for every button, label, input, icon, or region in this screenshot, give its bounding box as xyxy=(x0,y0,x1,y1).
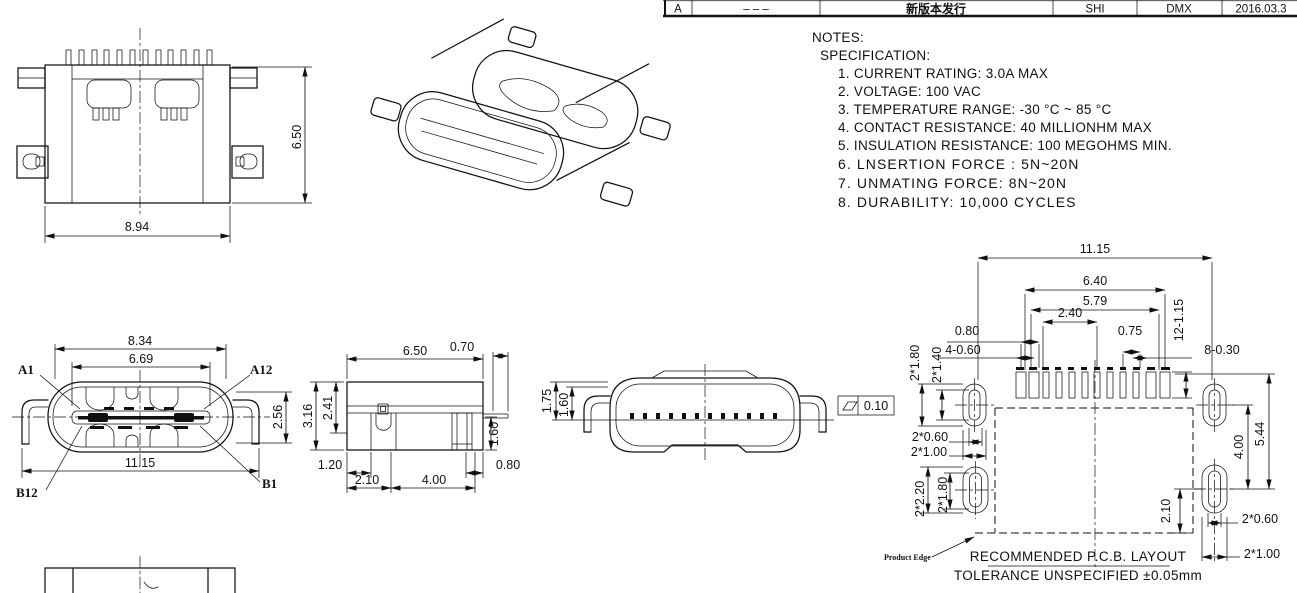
flatness-value: 0.10 xyxy=(864,399,888,413)
dim-side-leg-height: 1.60 xyxy=(485,417,501,450)
dim-text-6-40: 6.40 xyxy=(1083,274,1107,288)
dim-text-2x0-60: 2*0.60 xyxy=(912,430,948,444)
dim-pcb-gap: 4.00 xyxy=(1228,405,1253,489)
view-end: 1.75 1.60 0.10 xyxy=(540,364,894,460)
view-bottom-partial xyxy=(45,556,235,593)
notes-heading: NOTES: xyxy=(812,30,864,45)
top-view-inner-detail xyxy=(72,65,203,203)
side-inner-detail xyxy=(347,404,508,450)
titleblock-checked-by: DMX xyxy=(1166,4,1192,16)
note-item-3: 3. TEMPERATURE RANGE: -30 °C ~ 85 °C xyxy=(838,102,1112,117)
view-front: 8.34 6.69 2.56 11.15 A1 A12 B12 B1 xyxy=(12,334,292,500)
dim-text-6-50b: 6.50 xyxy=(403,344,427,358)
titleblock-drawn-by: SHI xyxy=(1085,4,1104,16)
dim-pcb-center-span: 2.40 xyxy=(1043,306,1097,370)
dim-text-11-15: 11.15 xyxy=(125,456,155,470)
flatness-callout: 0.10 xyxy=(838,396,894,415)
dim-pcb-pitch2: 0.75 xyxy=(1118,324,1142,368)
pcb-pad xyxy=(1146,372,1156,398)
note-item-8: 8. DURABILITY: 10,000 CYCLES xyxy=(838,194,1077,210)
flatness-symbol-icon xyxy=(843,402,857,410)
dim-front-tongue-width: 6.69 xyxy=(72,352,210,406)
side-body-outline xyxy=(347,382,483,450)
iso-tab xyxy=(639,116,671,141)
titleblock-date: 2016.03.3 xyxy=(1235,4,1286,16)
iso-tab xyxy=(600,181,634,207)
pcb-pad xyxy=(1107,372,1113,398)
pcb-tolerance-note: TOLERANCE UNSPECIFIED ±0.05mm xyxy=(954,568,1202,583)
dim-text-2x1-80: 2*1.80 xyxy=(908,345,922,381)
dim-text-1-75: 1.75 xyxy=(540,389,554,413)
pcb-pad xyxy=(1160,372,1170,398)
dim-side-shell-height: 2.41 xyxy=(321,382,347,433)
dim-text-1-60b: 1.60 xyxy=(557,393,571,417)
note-item-6: 6. LNSERTION FORCE : 5N~20N xyxy=(838,156,1079,172)
note-item-4: 4. CONTACT RESISTANCE: 40 MILLIONHM MAX xyxy=(838,120,1152,135)
dim-side-bottom: 1.20 2.10 4.00 0.80 xyxy=(318,452,520,493)
end-contact-row xyxy=(630,413,777,419)
dim-text-6-50: 6.50 xyxy=(290,125,304,149)
pin-label-b1: B1 xyxy=(262,476,277,491)
dim-top-width: 8.94 xyxy=(45,206,230,243)
dim-text-5-79: 5.79 xyxy=(1083,294,1107,308)
dim-text-0-70: 0.70 xyxy=(450,340,474,354)
pin-label-b12: B12 xyxy=(16,485,38,500)
dim-text-2-10: 2.10 xyxy=(355,473,379,487)
dim-pcb-edge: 2.10 xyxy=(1159,489,1202,533)
dim-text-2x1-40: 2*1.40 xyxy=(930,347,944,383)
titleblock-revision: A xyxy=(674,4,682,16)
pcb-pad-row xyxy=(1016,367,1170,398)
note-item-5: 5. INSULATION RESISTANCE: 100 MEGOHMS MI… xyxy=(838,138,1172,153)
dim-text-0-75: 0.75 xyxy=(1118,324,1142,338)
front-contacts xyxy=(78,407,204,429)
dim-text-2x1-80b: 2*1.80 xyxy=(936,477,950,513)
drawing-canvas: 6.50 8.94 xyxy=(0,0,1297,593)
dim-text-3-16: 3.16 xyxy=(301,404,315,428)
pcb-pad xyxy=(1043,372,1049,398)
view-pcb-layout: 11.15 6.40 5.79 2.40 0.80 0.75 xyxy=(884,242,1280,583)
dim-text-4-00r: 4.00 xyxy=(1232,435,1246,459)
pcb-pad xyxy=(1069,372,1075,398)
top-view-body-outline xyxy=(45,65,230,203)
pin-label-a1: A1 xyxy=(18,362,34,377)
dim-text-4-00: 4.00 xyxy=(422,473,446,487)
dim-text-1-20: 1.20 xyxy=(318,458,342,472)
view-top: 6.50 8.94 xyxy=(17,28,312,243)
dim-pcb-hole2: 8-0.30 xyxy=(1133,343,1240,358)
titleblock-description: 新版本发行 xyxy=(906,1,966,16)
view-isometric xyxy=(362,0,686,223)
dim-text-2-41: 2.41 xyxy=(321,396,335,420)
iso-back-shell xyxy=(465,43,646,157)
dim-text-2x2-20: 2*2.20 xyxy=(913,481,927,517)
dim-text-2x1-00r: 2*1.00 xyxy=(1244,547,1280,561)
dim-text-12-1-15: 12-1.15 xyxy=(1172,299,1186,341)
dim-text-0-80: 0.80 xyxy=(496,458,520,472)
dim-text-8-34: 8.34 xyxy=(128,334,152,348)
note-item-2: 2. VOLTAGE: 100 VAC xyxy=(838,84,981,99)
product-edge-text: Product Edge xyxy=(884,553,931,562)
top-view-pin-comb xyxy=(66,50,212,65)
pcb-pad xyxy=(1016,372,1026,398)
note-item-7: 7. UNMATING FORCE: 8N~20N xyxy=(838,175,1067,191)
pcb-pad xyxy=(1120,372,1126,398)
pin-label-a12: A12 xyxy=(250,362,272,377)
dim-text-0-80p: 0.80 xyxy=(955,324,979,338)
pcb-layout-title: RECOMMENDED P.C.B. LAYOUT xyxy=(970,549,1187,564)
notes-block: NOTES: SPECIFICATION: 1. CURRENT RATING:… xyxy=(812,30,1172,210)
front-pin-labels: A1 A12 B12 B1 xyxy=(16,362,277,500)
dim-text-2-40: 2.40 xyxy=(1058,306,1082,320)
view-side: 0.70 6.50 3.16 2.41 1.60 1.20 xyxy=(301,340,520,493)
dim-end-h1: 1.75 xyxy=(540,382,608,420)
iso-front-shell xyxy=(391,84,572,198)
dim-text-8-0-30: 8-0.30 xyxy=(1204,343,1239,357)
dim-text-1-60: 1.60 xyxy=(487,422,501,446)
pcb-pad xyxy=(1029,372,1039,398)
dim-text-2-56: 2.56 xyxy=(271,405,285,429)
pcb-pad xyxy=(1133,372,1139,398)
dim-text-2-10r: 2.10 xyxy=(1159,499,1173,523)
iso-tab xyxy=(370,97,402,122)
pcb-slot-centerlines xyxy=(955,378,1236,562)
dim-pcb-hole1: 4-0.60 xyxy=(938,343,1034,358)
front-side-leads xyxy=(22,400,259,444)
pcb-footer: RECOMMENDED P.C.B. LAYOUT TOLERANCE UNSP… xyxy=(954,549,1202,583)
dim-text-8-94: 8.94 xyxy=(125,220,149,234)
dim-text-5-44: 5.44 xyxy=(1253,422,1267,446)
dim-pcb-slot-lower-left: 2*2.20 2*1.80 xyxy=(913,467,969,517)
dim-text-6-69: 6.69 xyxy=(129,352,153,366)
titleblock-ecn: – – – xyxy=(743,4,769,16)
pcb-product-edge-label: Product Edge xyxy=(884,537,974,562)
dim-text-pcb-11-15: 11.15 xyxy=(1080,242,1110,256)
dim-end-h2: 1.60 xyxy=(557,387,608,420)
dim-text-2x0-60r: 2*0.60 xyxy=(1242,512,1278,526)
note-item-1: 1. CURRENT RATING: 3.0A MAX xyxy=(838,66,1048,81)
dim-text-4-0-60: 4-0.60 xyxy=(945,343,980,357)
iso-tab xyxy=(507,26,536,49)
notes-subheading: SPECIFICATION: xyxy=(820,48,930,63)
dim-side-lead: 0.70 xyxy=(450,340,508,411)
pcb-pad xyxy=(1082,372,1088,398)
dim-text-2x1-00: 2*1.00 xyxy=(911,445,947,459)
pcb-pad xyxy=(1056,372,1062,398)
title-block: A – – – 新版本发行 SHI DMX 2016.03.3 xyxy=(663,0,1297,16)
engineering-drawing-sheet: 6.50 8.94 xyxy=(0,0,1297,593)
dim-pcb-pad-size: 12-1.15 xyxy=(1172,299,1192,398)
dim-pcb-slot-lower-right: 2*0.60 2*1.00 xyxy=(1202,512,1280,561)
